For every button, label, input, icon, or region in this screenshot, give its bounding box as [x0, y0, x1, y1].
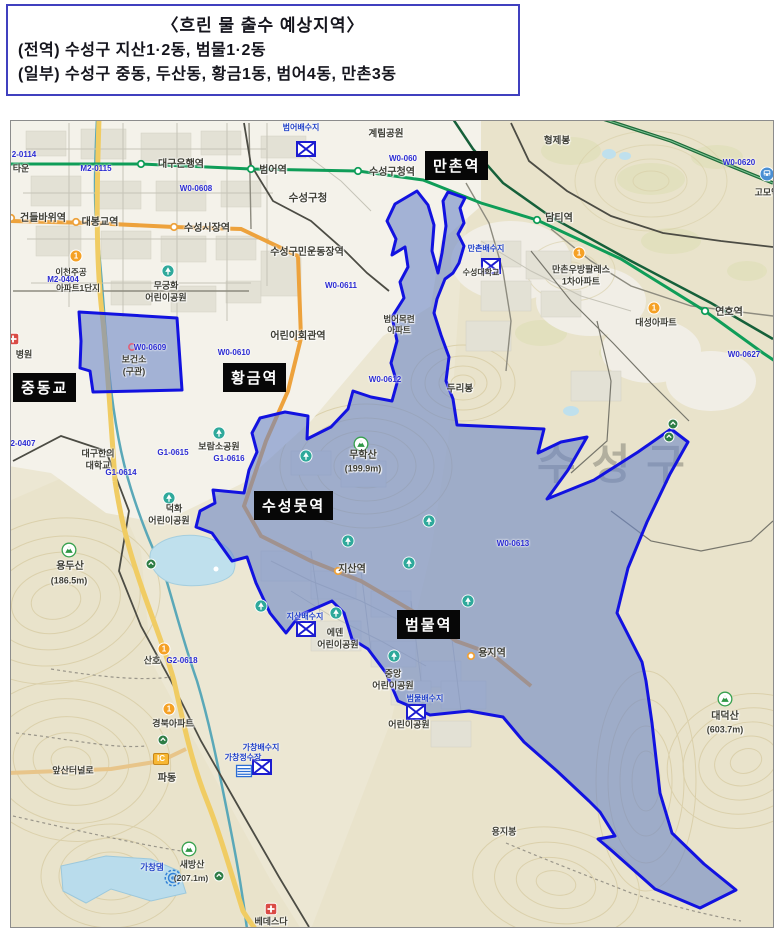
subway-line2-station-icon [355, 168, 361, 174]
flood-zone-jungdong [79, 312, 182, 392]
park-icon [403, 557, 415, 569]
park-icon [330, 607, 342, 619]
trail-marker-icon [214, 871, 224, 881]
hospital-icon [265, 903, 277, 915]
station-label-box: 수성못역 [254, 491, 333, 520]
park-icon [213, 427, 225, 439]
subway-line3-station-icon [11, 215, 14, 221]
reservoir-x-icon [297, 622, 315, 636]
subway-line3-station-icon [73, 219, 79, 225]
hospital-icon [11, 333, 19, 345]
mountain-peak-icon [718, 692, 732, 706]
trail-marker-icon [664, 432, 674, 442]
reservoir-x-icon [407, 705, 425, 719]
station-label-box: 황금역 [223, 363, 286, 392]
reservoir-x-icon [482, 259, 500, 273]
mountain-peak-icon [182, 842, 196, 856]
park-icon [342, 535, 354, 547]
park-icon [163, 492, 175, 504]
park-icon [255, 600, 267, 612]
subway-line3-station-icon [171, 224, 177, 230]
subway-line2-station-icon [534, 217, 540, 223]
reservoir-x-icon [253, 760, 271, 774]
subway-line3-station-icon [295, 335, 301, 341]
water-plant-icon [237, 765, 252, 776]
subway-line2-station-icon [248, 166, 254, 172]
trail-marker-icon [668, 419, 678, 429]
station-label-box: 범물역 [397, 610, 460, 639]
trail-marker-icon [146, 559, 156, 569]
subway-line2-station-icon [138, 161, 144, 167]
mountain-peak-icon [62, 543, 76, 557]
notice-title: 〈흐린 물 출수 예상지역〉 [18, 9, 508, 39]
park-icon [423, 515, 435, 527]
reservoir-x-icon [297, 142, 315, 156]
subway-line3-station-icon [335, 568, 341, 574]
city-map: 수성구 대구은행역범어역건들바위역대봉교역수성시장역수성구청수성구청역수성구민운… [10, 120, 774, 928]
mountain-peak-icon [354, 437, 368, 451]
notice-box: 〈흐린 물 출수 예상지역〉 (전역) 수성구 지산1·2동, 범물1·2동 (… [6, 4, 520, 96]
park-icon [462, 595, 474, 607]
notice-line-full: (전역) 수성구 지산1·2동, 범물1·2동 [18, 39, 508, 63]
station-label-box: 중동교 [13, 373, 76, 402]
subway-line2-station-icon [702, 308, 708, 314]
park-icon [162, 265, 174, 277]
trail-marker-icon [158, 735, 168, 745]
subway-line3-station-icon [468, 653, 474, 659]
notice-line-partial: (일부) 수성구 중동, 두산동, 황금1동, 범어4동, 만촌3동 [18, 63, 508, 87]
station-label-box: 만촌역 [425, 151, 488, 180]
railway-station-icon [760, 167, 773, 181]
park-icon [300, 450, 312, 462]
map-base-svg: 수성구 [11, 121, 773, 927]
park-icon [388, 650, 400, 662]
